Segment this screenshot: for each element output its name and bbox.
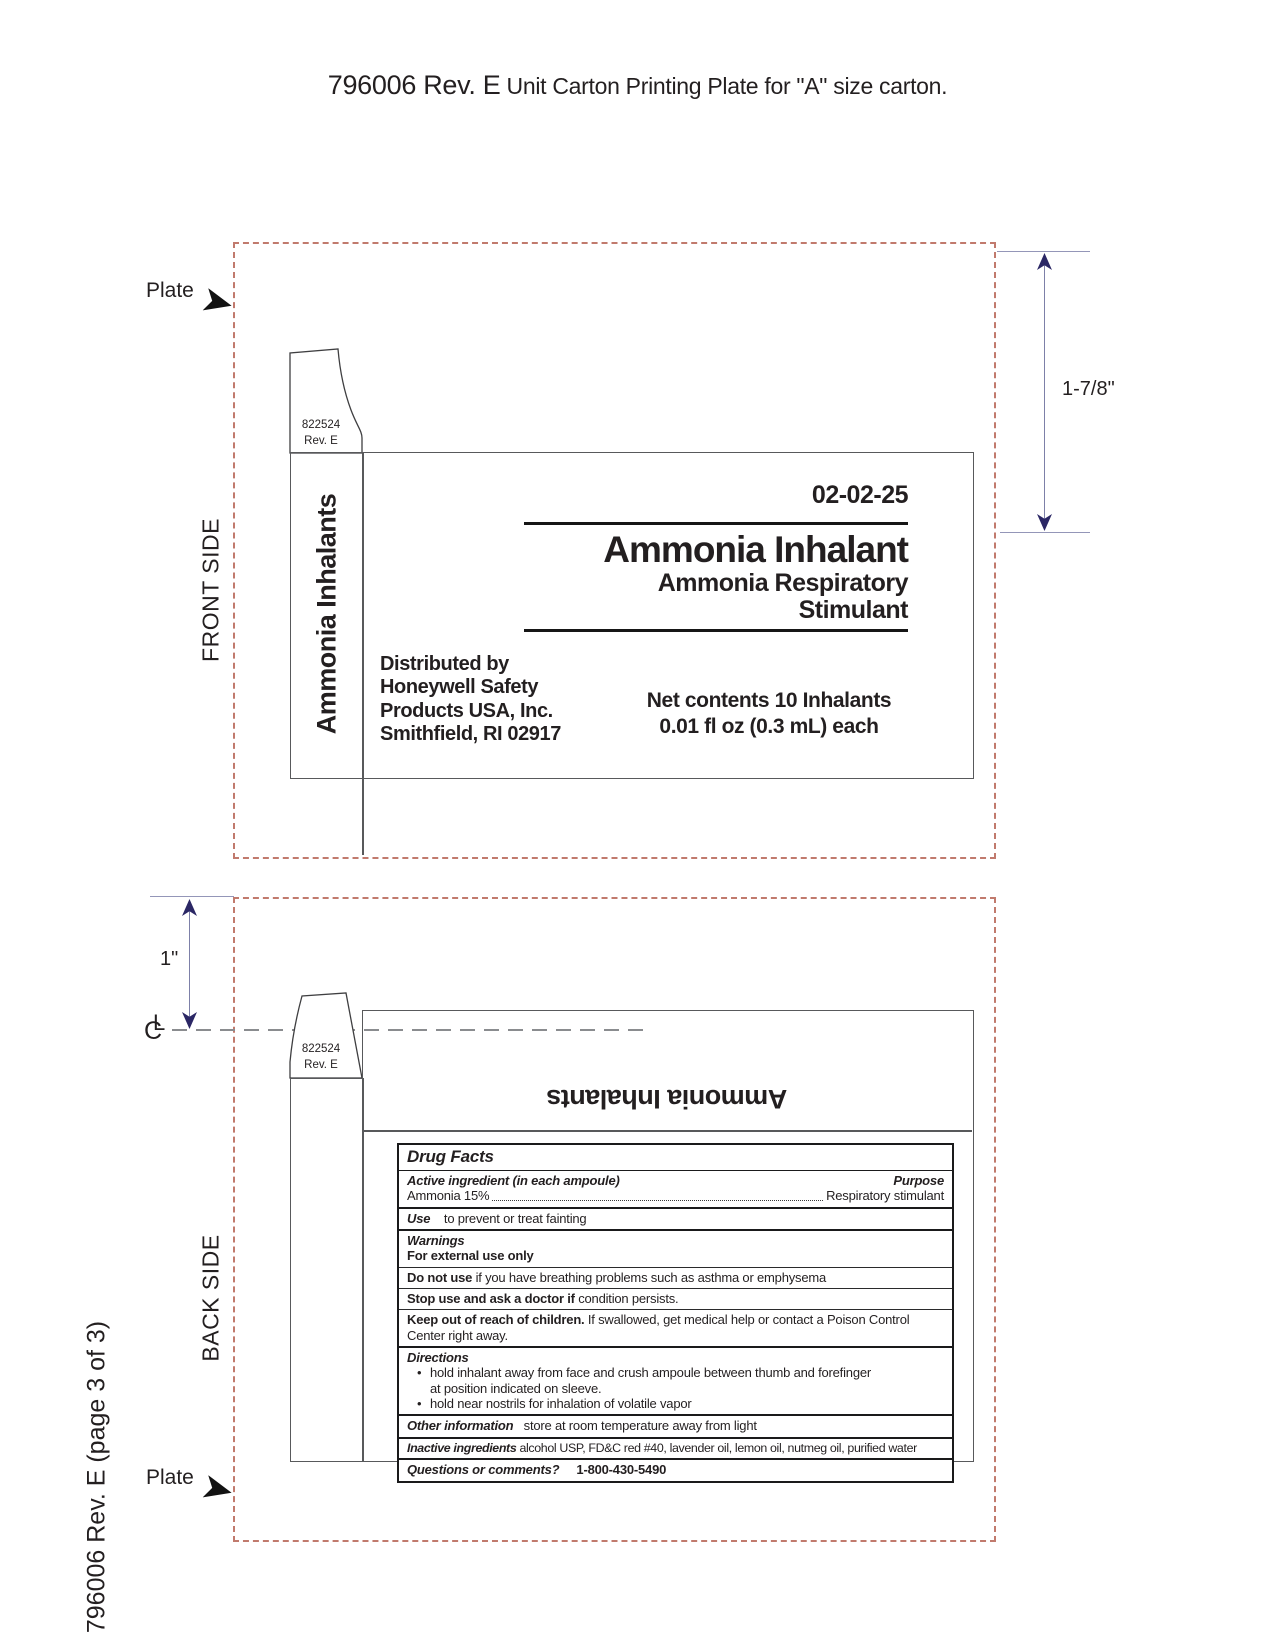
active-ingredient-name: Ammonia 15% [407, 1188, 489, 1203]
inactive-ingredients-row: Inactive ingredients alcohol USP, FD&C r… [399, 1437, 952, 1459]
directions-label: Directions [407, 1350, 944, 1365]
stop-use-label: Stop use and ask a doctor if [407, 1291, 575, 1306]
plate-pointer-arrow-back-icon [203, 1475, 235, 1504]
do-not-use-row: Do not use if you have breathing problem… [399, 1267, 952, 1288]
other-information-row: Other information store at room temperat… [399, 1414, 952, 1436]
tab-rev-back: Rev. E [290, 1058, 352, 1074]
back-panel-title-upside-down: Ammonia Inhalants [460, 1083, 874, 1114]
plate-callout-label-back: Plate [146, 1466, 194, 1490]
use-label: Use [407, 1211, 430, 1226]
tab-label-back: 822524 Rev. E [290, 1042, 352, 1073]
questions-label: Questions or comments? [407, 1462, 559, 1477]
use-section: Use to prevent or treat fainting [399, 1207, 952, 1229]
inactive-ingredients-label: Inactive ingredients [407, 1441, 516, 1455]
external-use-text: For external use only [407, 1248, 944, 1263]
other-information-label: Other information [407, 1418, 513, 1433]
tab-number-back: 822524 [290, 1042, 352, 1058]
questions-phone-number: 1-800-430-5490 [576, 1462, 666, 1477]
dim-arrow-shaft-back [189, 900, 190, 1028]
back-panel-band-line [362, 1130, 972, 1132]
centerline-l: L [153, 1012, 165, 1034]
inactive-ingredients-text: alcohol USP, FD&C red #40, lavender oil,… [519, 1441, 916, 1455]
warnings-label: Warnings [407, 1233, 944, 1248]
centerline-symbol: C L [144, 1012, 170, 1048]
direction-1-text: hold inhalant away from face and crush a… [430, 1365, 871, 1380]
other-information-text: store at room temperature away from ligh… [524, 1418, 757, 1433]
keep-out-label: Keep out of reach of children. [407, 1312, 584, 1327]
back-side-label: BACK SIDE [198, 1234, 225, 1361]
direction-2-text: hold near nostrils for inhalation of vol… [430, 1396, 692, 1411]
use-text: to prevent or treat fainting [444, 1211, 587, 1226]
direction-item: • hold near nostrils for inhalation of v… [407, 1396, 944, 1411]
page-footer-vertical: 796006 Rev. E (page 3 of 3) [83, 1321, 112, 1633]
bullet-icon: • [417, 1396, 430, 1411]
dotted-leader [492, 1188, 823, 1200]
questions-row: Questions or comments? 1-800-430-5490 [399, 1458, 952, 1480]
bullet-icon: • [417, 1365, 430, 1380]
dim-tick-top-back [150, 896, 234, 897]
do-not-use-label: Do not use [407, 1270, 472, 1285]
do-not-use-text: if you have breathing problems such as a… [476, 1270, 826, 1285]
stop-use-row: Stop use and ask a doctor if condition p… [399, 1288, 952, 1309]
back-side-section: BACK SIDE 1" C L 822524 Rev. E Ammonia I… [0, 0, 1275, 1650]
keep-out-row: Keep out of reach of children. If swallo… [399, 1309, 952, 1346]
purpose-heading: Purpose [893, 1173, 944, 1188]
drug-facts-title: Drug Facts [399, 1145, 952, 1171]
direction-1-continuation: at position indicated on sleeve. [407, 1381, 944, 1396]
directions-section: Directions • hold inhalant away from fac… [399, 1346, 952, 1414]
active-ingredient-section: Active ingredient (in each ampoule) Purp… [399, 1171, 952, 1207]
purpose-value: Respiratory stimulant [826, 1188, 944, 1203]
active-ingredient-heading: Active ingredient (in each ampoule) [407, 1173, 620, 1188]
drug-facts-panel: Drug Facts Active ingredient (in each am… [397, 1143, 954, 1483]
warnings-heading-row: Warnings For external use only [399, 1229, 952, 1267]
stop-use-text: condition persists. [578, 1291, 678, 1306]
back-left-flap [290, 1078, 364, 1462]
direction-item: • hold inhalant away from face and crush… [407, 1365, 944, 1380]
printing-plate-drawing: 796006 Rev. E Unit Carton Printing Plate… [0, 0, 1275, 1650]
dim-label-back: 1" [160, 948, 178, 971]
